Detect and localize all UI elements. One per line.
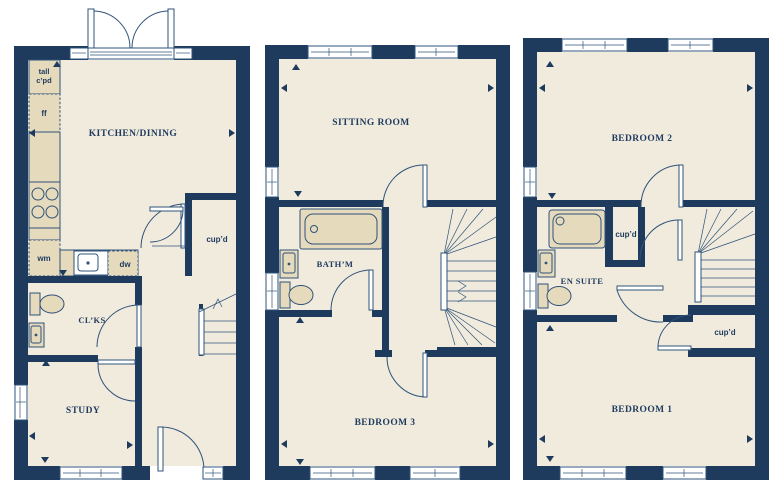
room-label-cupboard-bedroom: cup’d [714,328,735,337]
second-floor-area [537,52,755,466]
label-fridge-freezer: ff [41,109,47,118]
room-label-bedroom1: BEDROOM 1 [612,405,673,415]
shower-tray [549,210,605,248]
first-floor-plan: SITTING ROOM BATH’M BEDROOM 3 [265,45,510,480]
room-label-cupboard-landing: cup’d [615,230,636,239]
french-doors [88,9,174,59]
window [410,467,460,479]
toilet [30,293,64,315]
window [524,272,536,310]
label-dishwasher: dw [119,260,131,269]
basin [538,250,555,277]
room-label-sitting-room: SITTING ROOM [332,118,409,128]
room-label-cloakroom: CL’KS [78,315,105,325]
worktop [29,132,60,182]
basin [29,323,44,347]
window [562,39,627,51]
window [560,467,626,479]
basin [280,250,298,278]
label-tall-cupboard: c’pd [36,76,52,85]
label-tall-cupboard: tall [39,67,50,76]
worktop [29,228,60,240]
room-label-bedroom3: BEDROOM 3 [355,418,416,428]
window [524,167,536,197]
room-label-bedroom2: BEDROOM 2 [612,134,673,144]
ground-floor-plan: KITCHEN/DINING cup’d CL’KS STUDY tall c’… [14,8,250,487]
label-washing-machine: wm [36,254,50,263]
window [174,48,192,59]
window [15,385,27,420]
window [663,467,706,479]
window [203,467,223,479]
floorplan-canvas: KITCHEN/DINING cup’d CL’KS STUDY tall c’… [0,0,769,495]
room-label-study: STUDY [66,406,100,416]
room-label-bathroom: BATH’M [317,259,354,269]
bathtub [300,209,382,249]
room-label-en-suite: EN SUITE [561,276,604,286]
window [415,46,458,58]
window [266,273,278,310]
room-label-cupboard: cup’d [206,235,227,244]
window [60,467,122,479]
window [310,467,375,479]
window [308,46,372,58]
window [70,48,88,59]
window [668,39,713,51]
room-label-kitchen-dining: KITCHEN/DINING [89,129,178,139]
second-floor-plan: BEDROOM 2 cup’d EN SUITE cup’d BEDROOM 1 [523,38,769,480]
window [266,167,278,197]
